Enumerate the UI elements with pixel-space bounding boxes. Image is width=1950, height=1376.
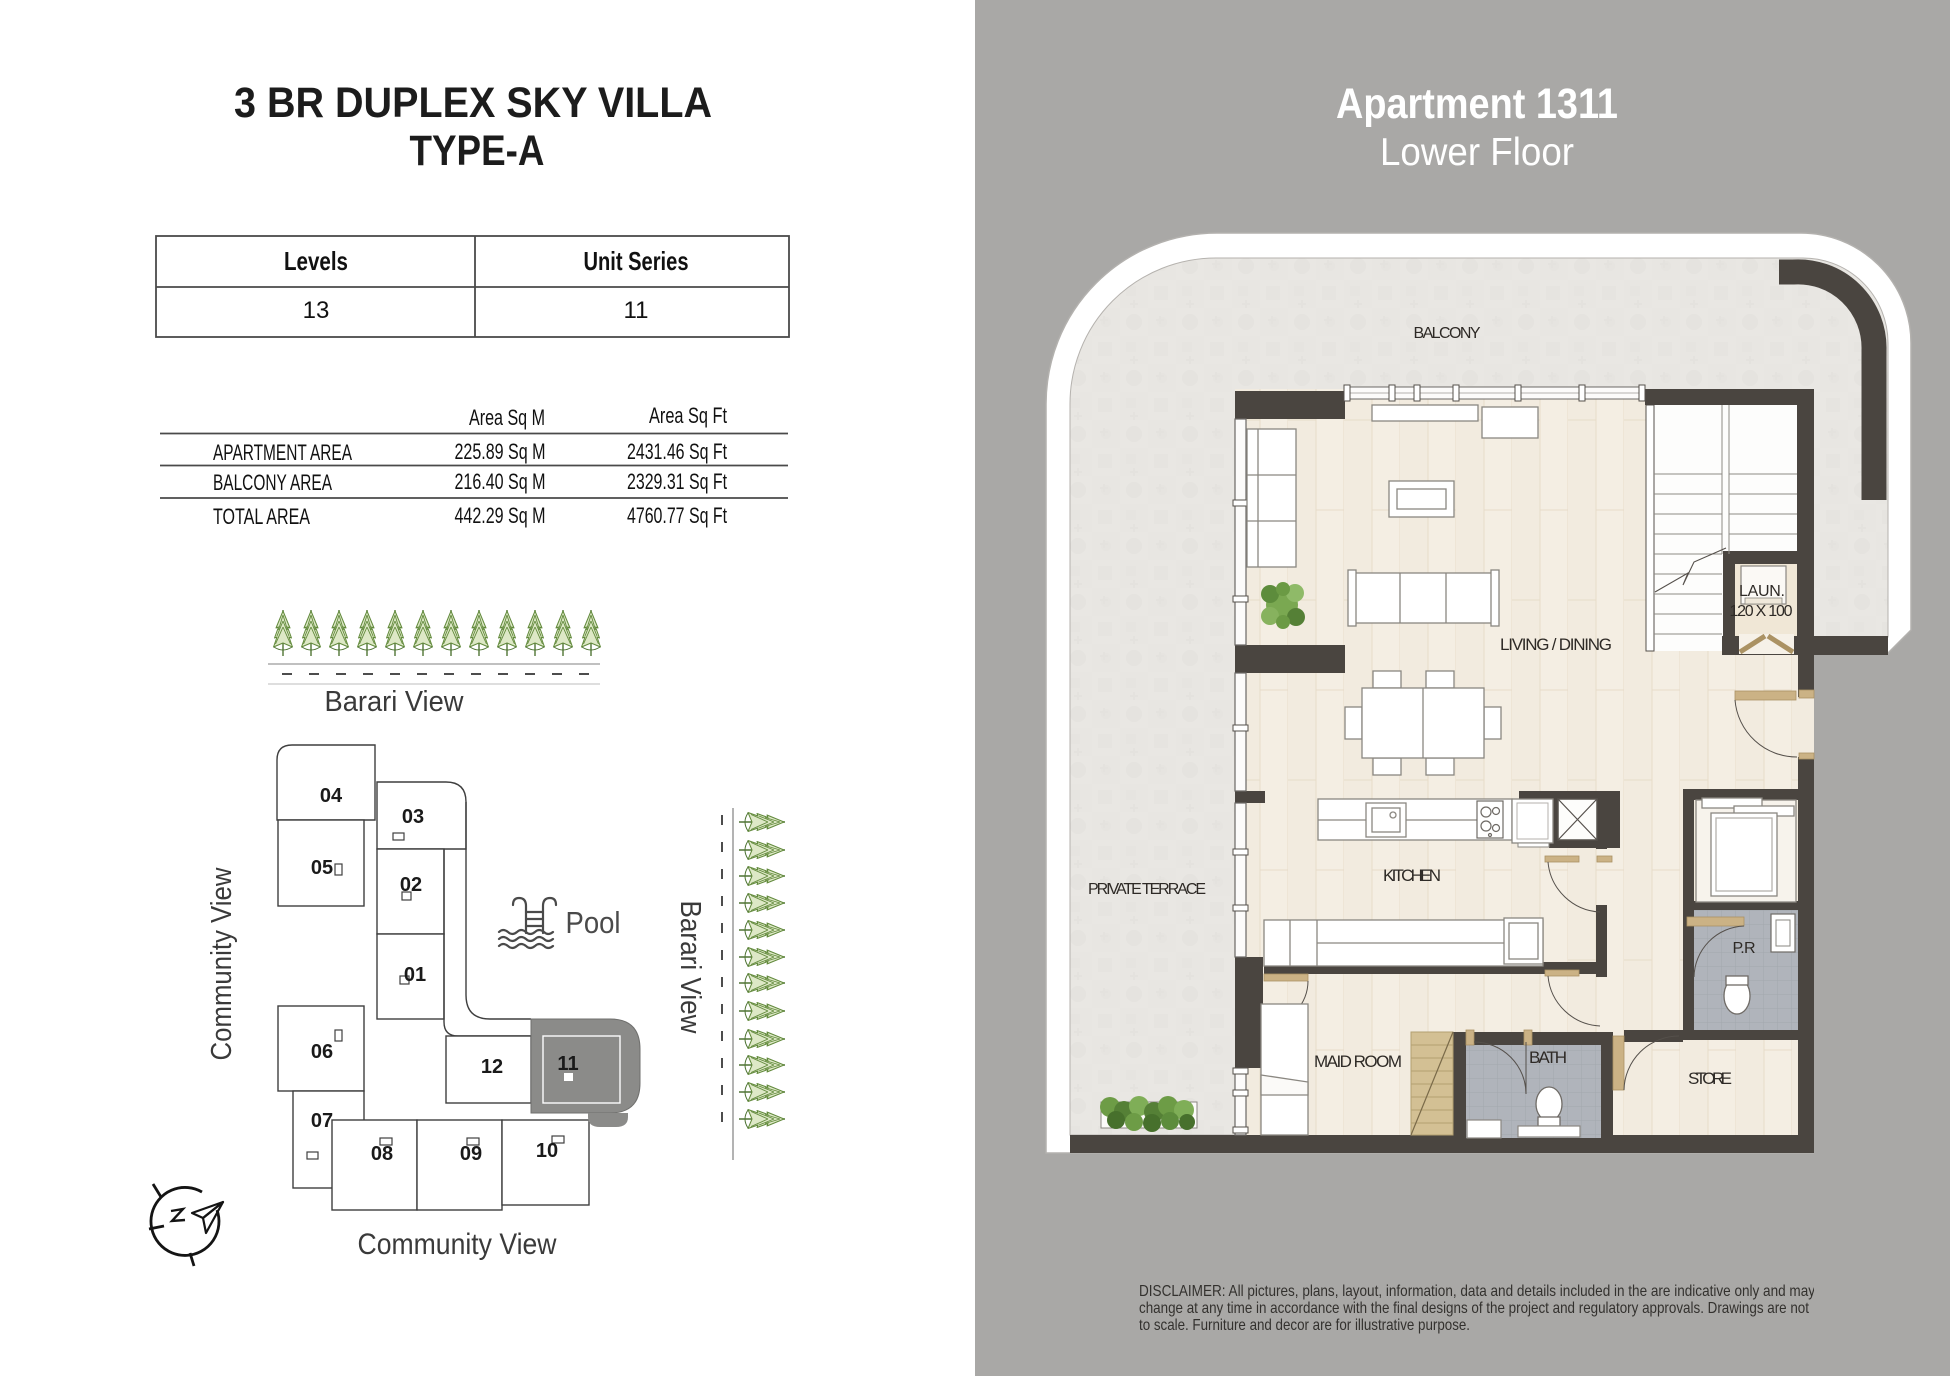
svg-text:PRIVATE TERRACE: PRIVATE TERRACE xyxy=(1088,881,1206,898)
svg-text:11: 11 xyxy=(557,1053,578,1075)
svg-text:P.R: P.R xyxy=(1733,940,1756,957)
svg-text:12: 12 xyxy=(481,1056,503,1078)
svg-text:04: 04 xyxy=(320,785,343,807)
svg-text:MAID ROOM: MAID ROOM xyxy=(1314,1052,1402,1071)
svg-text:STORE: STORE xyxy=(1688,1069,1732,1088)
svg-text:LAUN.: LAUN. xyxy=(1739,583,1785,600)
svg-text:03: 03 xyxy=(402,806,424,828)
svg-text:KITCHEN: KITCHEN xyxy=(1383,866,1441,885)
svg-text:07: 07 xyxy=(311,1110,333,1132)
svg-text:01: 01 xyxy=(404,964,426,986)
svg-text:BALCONY: BALCONY xyxy=(1414,325,1481,342)
svg-text:05: 05 xyxy=(311,857,333,879)
svg-text:08: 08 xyxy=(371,1143,393,1165)
svg-text:LIVING / DINING: LIVING / DINING xyxy=(1500,635,1612,654)
svg-text:09: 09 xyxy=(460,1143,482,1165)
svg-text:BATH: BATH xyxy=(1529,1048,1567,1067)
svg-text:02: 02 xyxy=(400,874,422,896)
svg-text:06: 06 xyxy=(311,1041,333,1063)
svg-text:10: 10 xyxy=(536,1140,558,1162)
svg-text:120 X 100: 120 X 100 xyxy=(1730,603,1793,620)
